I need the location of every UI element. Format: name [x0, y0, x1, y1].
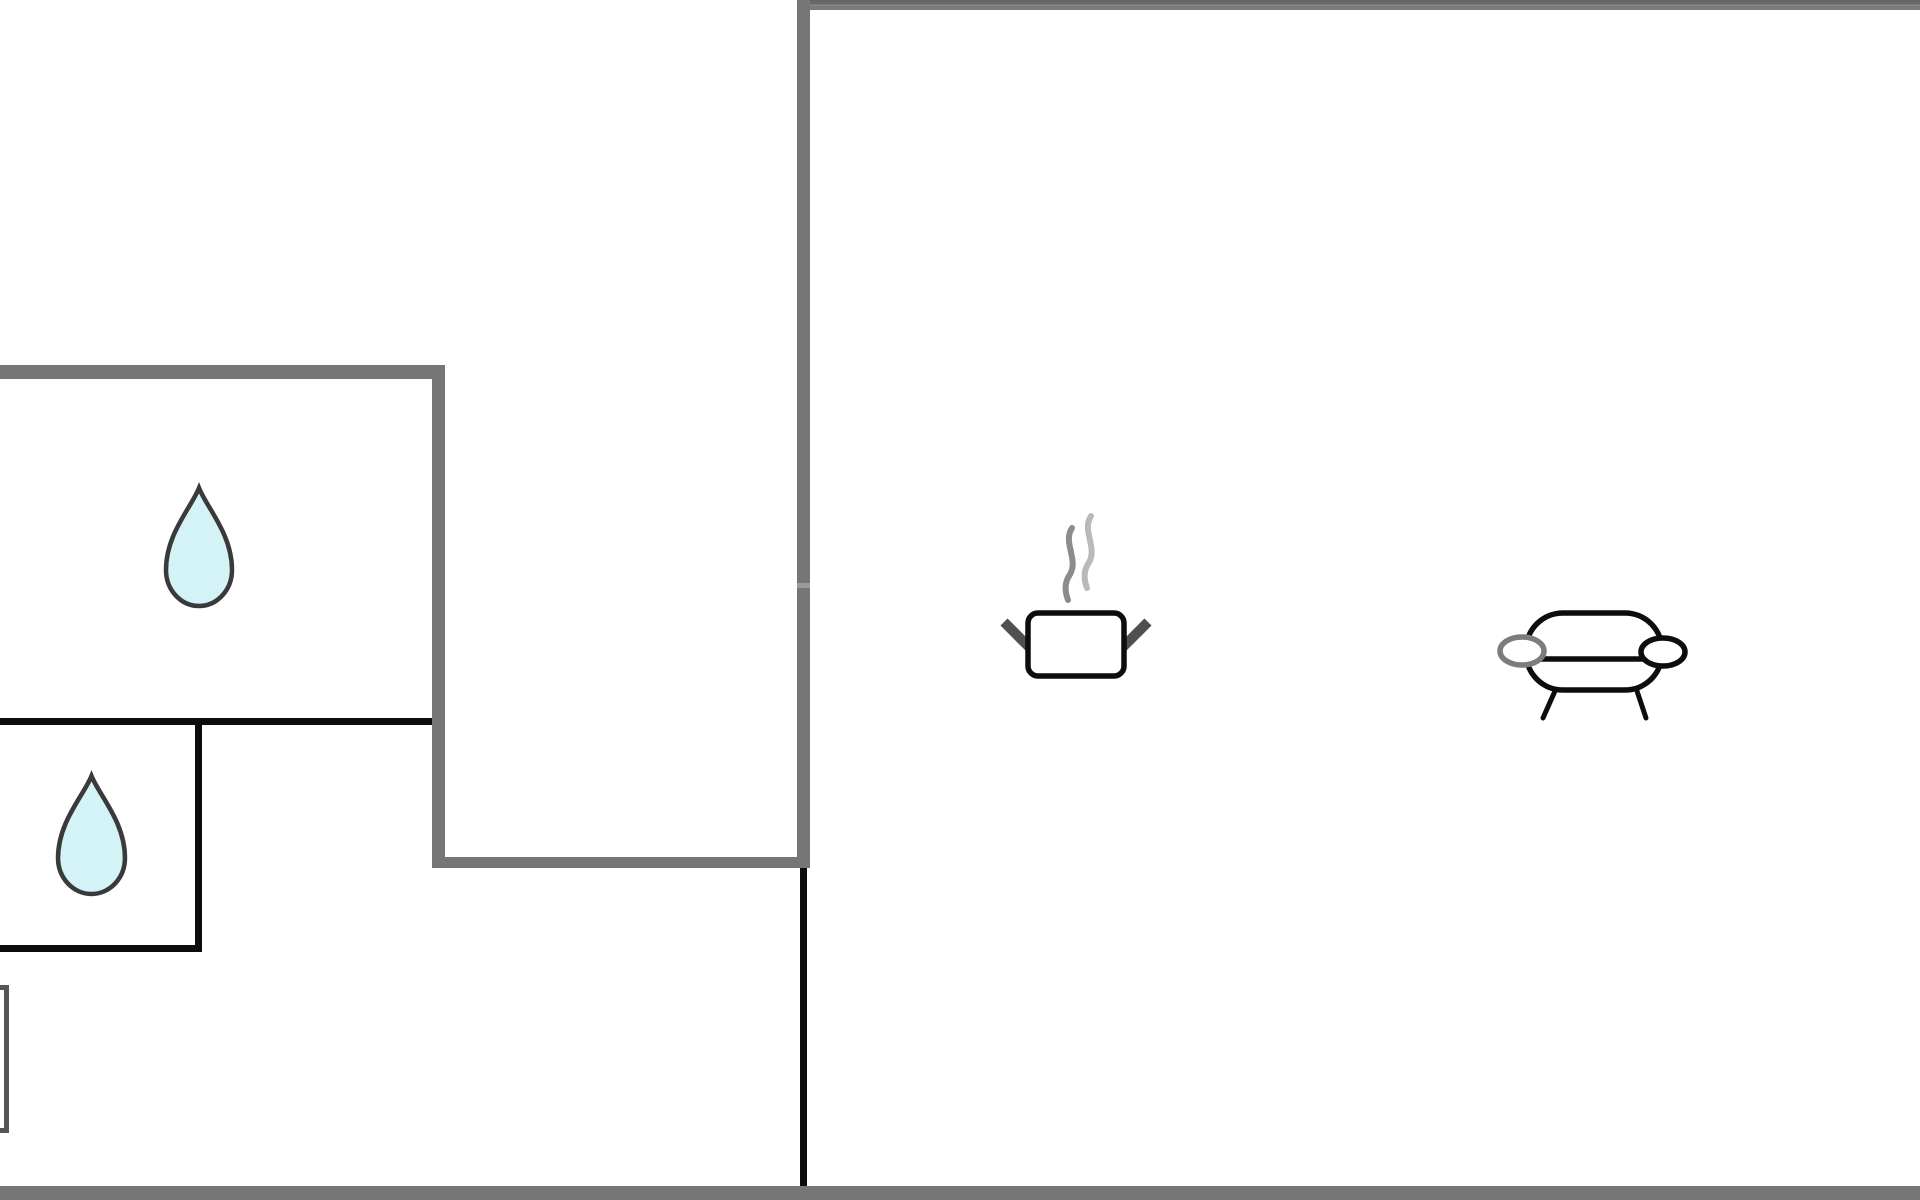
- wall-bottom: [0, 1186, 1920, 1200]
- sofa-armrest-left-icon: [1500, 637, 1544, 665]
- sofa-leg-left-icon: [1543, 691, 1555, 718]
- wall-small-room-bottom: [0, 945, 202, 952]
- wall-segment-joint: [797, 583, 810, 588]
- wall-top: [797, 0, 1920, 10]
- wall-left-room-top: [0, 365, 445, 379]
- floorplan-canvas: [0, 0, 1920, 1200]
- water-drop-icon-small-room: [55, 773, 128, 897]
- sofa-icon: [1485, 602, 1695, 722]
- partial-rectangle-bottom-left: [0, 985, 9, 1133]
- water-drop-icon-large-room: [163, 485, 235, 609]
- water-drop-shape: [166, 488, 232, 606]
- wall-left-room-bottom-divider: [0, 718, 438, 725]
- wall-left-room-right: [432, 365, 445, 868]
- pot-body-shape: [1028, 613, 1124, 676]
- wall-center-vertical: [797, 0, 810, 868]
- cooking-pot-icon: [995, 510, 1155, 685]
- wall-small-room-right: [195, 718, 202, 952]
- water-drop-shape: [58, 776, 125, 894]
- steam-line-light-icon: [1085, 516, 1092, 588]
- sofa-armrest-right-icon: [1641, 638, 1685, 666]
- wall-corridor-bottom: [432, 857, 810, 868]
- wall-hall-divider-line: [800, 863, 807, 1190]
- sofa-leg-right-icon: [1637, 691, 1646, 718]
- steam-line-dark-icon: [1066, 528, 1073, 600]
